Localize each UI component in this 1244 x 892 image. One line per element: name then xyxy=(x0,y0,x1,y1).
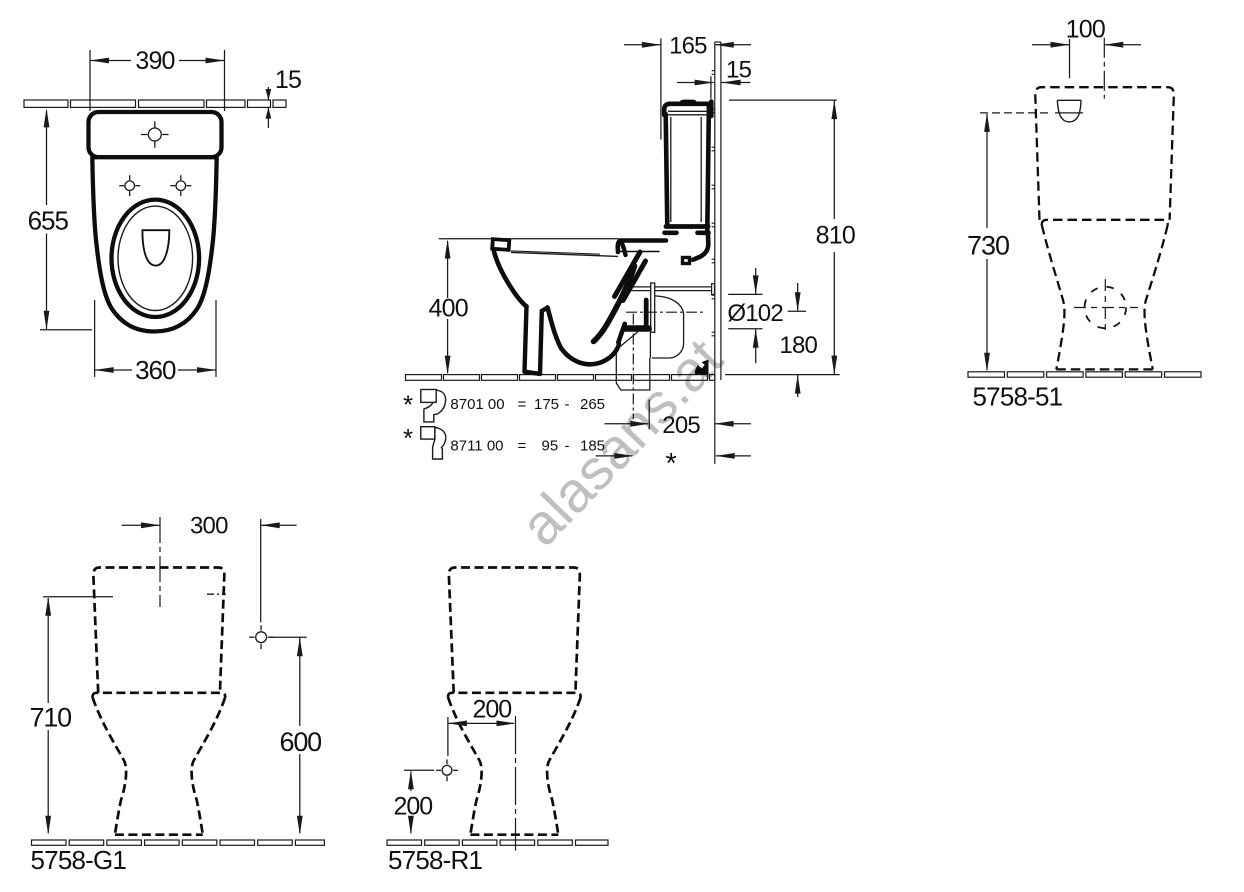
svg-text:8701 00: 8701 00 xyxy=(450,396,504,413)
svg-text:400: 400 xyxy=(429,295,468,323)
svg-text:300: 300 xyxy=(190,513,228,540)
svg-text:5758-51: 5758-51 xyxy=(973,382,1063,412)
svg-text:730: 730 xyxy=(967,231,1009,261)
svg-text:165: 165 xyxy=(669,33,707,60)
svg-text:=: = xyxy=(518,438,527,455)
svg-text:=: = xyxy=(518,396,527,413)
svg-text:265: 265 xyxy=(580,396,605,413)
svg-text:180: 180 xyxy=(779,332,817,359)
svg-text:710: 710 xyxy=(30,703,72,733)
svg-text:205: 205 xyxy=(662,412,700,439)
svg-text:*: * xyxy=(403,390,413,420)
svg-text:175: 175 xyxy=(534,396,559,413)
svg-text:200: 200 xyxy=(473,696,512,724)
svg-text:15: 15 xyxy=(726,57,752,84)
svg-text:5758-G1: 5758-G1 xyxy=(31,845,127,875)
svg-text:655: 655 xyxy=(28,205,69,235)
svg-text:-: - xyxy=(565,438,570,455)
svg-text:15: 15 xyxy=(275,66,301,94)
svg-text:360: 360 xyxy=(135,355,176,385)
svg-text:185: 185 xyxy=(580,438,605,455)
svg-text:*: * xyxy=(403,423,413,453)
svg-text:390: 390 xyxy=(135,47,174,75)
svg-text:5758-R1: 5758-R1 xyxy=(388,845,482,875)
svg-text:Ø102: Ø102 xyxy=(727,300,783,327)
svg-text:200: 200 xyxy=(394,793,433,821)
svg-text:100: 100 xyxy=(1066,16,1105,44)
svg-text:*: * xyxy=(666,448,677,480)
svg-text:810: 810 xyxy=(816,222,855,250)
svg-text:95: 95 xyxy=(542,438,559,455)
svg-text:8711 00: 8711 00 xyxy=(450,438,503,455)
svg-text:600: 600 xyxy=(280,727,322,757)
svg-text:-: - xyxy=(565,396,570,413)
